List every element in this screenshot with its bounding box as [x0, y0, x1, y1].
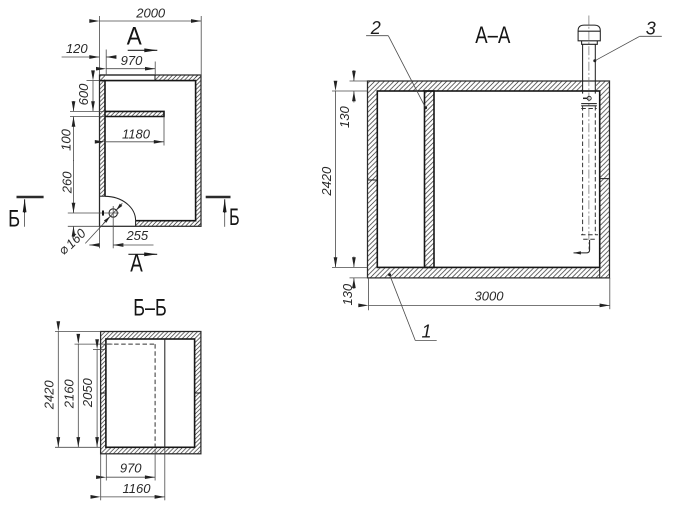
svg-text:2420: 2420	[42, 380, 57, 411]
svg-text:Б: Б	[8, 206, 20, 233]
svg-text:100: 100	[58, 128, 73, 150]
svg-text:Б–Б: Б–Б	[133, 294, 167, 321]
svg-text:1: 1	[421, 321, 431, 341]
svg-text:3: 3	[646, 18, 656, 38]
svg-text:120: 120	[66, 41, 88, 56]
svg-text:1180: 1180	[122, 127, 151, 142]
svg-text:2050: 2050	[80, 377, 95, 408]
svg-text:970: 970	[120, 460, 142, 475]
svg-text:2420: 2420	[319, 166, 334, 197]
svg-text:600: 600	[76, 83, 91, 105]
svg-text:130: 130	[340, 283, 355, 305]
svg-text:2: 2	[370, 18, 381, 38]
svg-text:3000: 3000	[475, 289, 505, 304]
svg-text:130: 130	[337, 105, 352, 127]
svg-text:Б: Б	[229, 204, 240, 231]
svg-text:А: А	[130, 250, 143, 278]
svg-text:260: 260	[59, 171, 74, 194]
svg-text:255: 255	[125, 228, 148, 243]
svg-text:2000: 2000	[135, 6, 166, 21]
svg-text:970: 970	[121, 53, 143, 68]
svg-text:А–А: А–А	[475, 22, 510, 49]
svg-text:2160: 2160	[61, 379, 76, 410]
svg-text:А: А	[127, 23, 142, 51]
svg-text:1160: 1160	[123, 481, 152, 496]
